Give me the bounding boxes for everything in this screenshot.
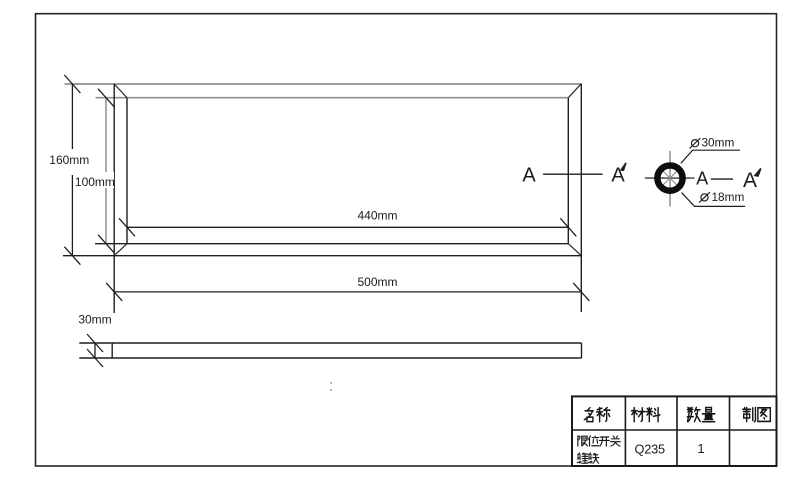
svg-text:18mm: 18mm xyxy=(712,190,745,204)
svg-text:A: A xyxy=(522,165,536,187)
svg-text:30mm: 30mm xyxy=(702,136,735,150)
svg-text:A: A xyxy=(696,169,708,189)
svg-text:440mm: 440mm xyxy=(357,209,397,223)
svg-text:30mm: 30mm xyxy=(78,313,111,327)
svg-text:A: A xyxy=(743,169,757,192)
svg-text:100mm: 100mm xyxy=(75,175,115,189)
svg-text:Q235: Q235 xyxy=(634,442,665,457)
svg-text:500mm: 500mm xyxy=(357,275,397,289)
svg-text:160mm: 160mm xyxy=(49,153,89,167)
svg-text:1: 1 xyxy=(697,441,704,456)
